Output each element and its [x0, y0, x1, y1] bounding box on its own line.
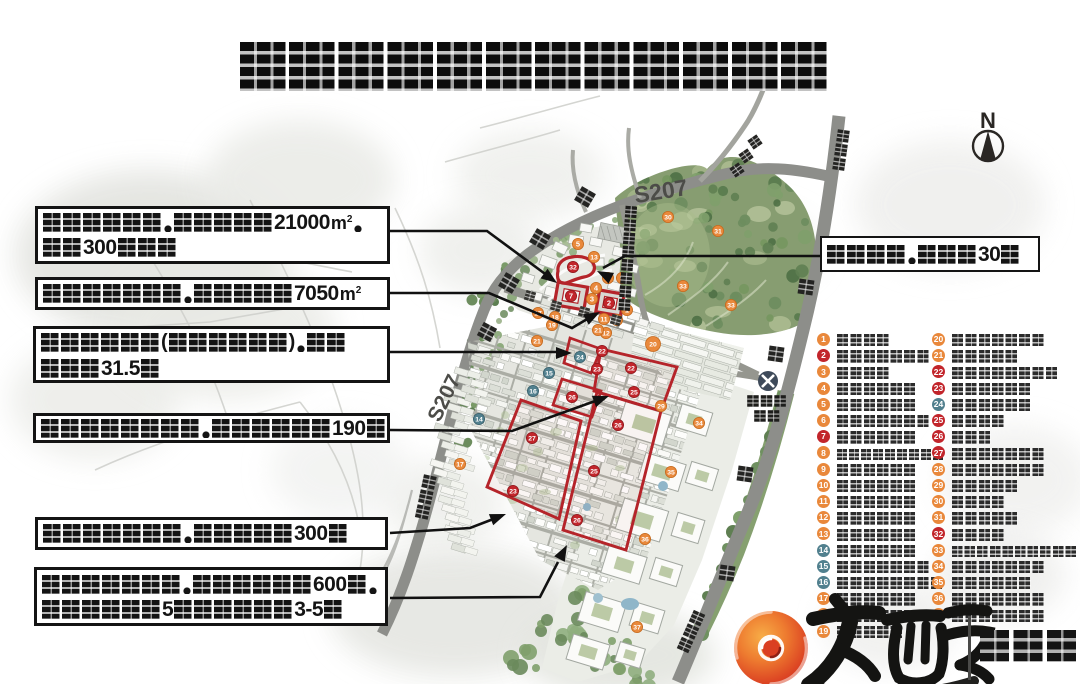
svg-text:5: 5 — [576, 239, 580, 248]
svg-text:20: 20 — [649, 341, 657, 348]
svg-text:2: 2 — [607, 298, 611, 307]
svg-text:21: 21 — [533, 338, 541, 345]
svg-text:21: 21 — [594, 327, 602, 334]
svg-text:15: 15 — [545, 370, 553, 377]
svg-text:3: 3 — [590, 294, 594, 303]
svg-text:23: 23 — [593, 366, 601, 373]
svg-text:32: 32 — [569, 264, 577, 271]
svg-text:22: 22 — [598, 348, 606, 355]
svg-text:33: 33 — [727, 302, 735, 309]
svg-text:30: 30 — [664, 214, 672, 221]
svg-text:27: 27 — [528, 435, 536, 442]
svg-text:25: 25 — [590, 468, 598, 475]
svg-text:22: 22 — [627, 365, 635, 372]
svg-text:26: 26 — [614, 422, 622, 429]
svg-text:23: 23 — [509, 488, 517, 495]
svg-text:37: 37 — [633, 624, 641, 631]
svg-text:35: 35 — [667, 469, 675, 476]
svg-text:16: 16 — [529, 388, 537, 395]
svg-text:36: 36 — [641, 536, 649, 543]
svg-text:31: 31 — [714, 228, 722, 235]
svg-text:24: 24 — [576, 354, 584, 361]
svg-text:11: 11 — [600, 316, 607, 323]
svg-text:7: 7 — [569, 291, 573, 300]
svg-text:33: 33 — [679, 283, 687, 290]
svg-text:26: 26 — [568, 394, 576, 401]
svg-text:26: 26 — [573, 517, 581, 524]
svg-text:14: 14 — [475, 416, 483, 423]
svg-text:17: 17 — [456, 461, 464, 468]
svg-text:29: 29 — [657, 403, 665, 410]
svg-text:19: 19 — [548, 322, 556, 329]
svg-text:N: N — [980, 108, 996, 133]
svg-text:34: 34 — [695, 420, 703, 427]
svg-text:13: 13 — [590, 254, 598, 261]
svg-text:25: 25 — [630, 389, 638, 396]
